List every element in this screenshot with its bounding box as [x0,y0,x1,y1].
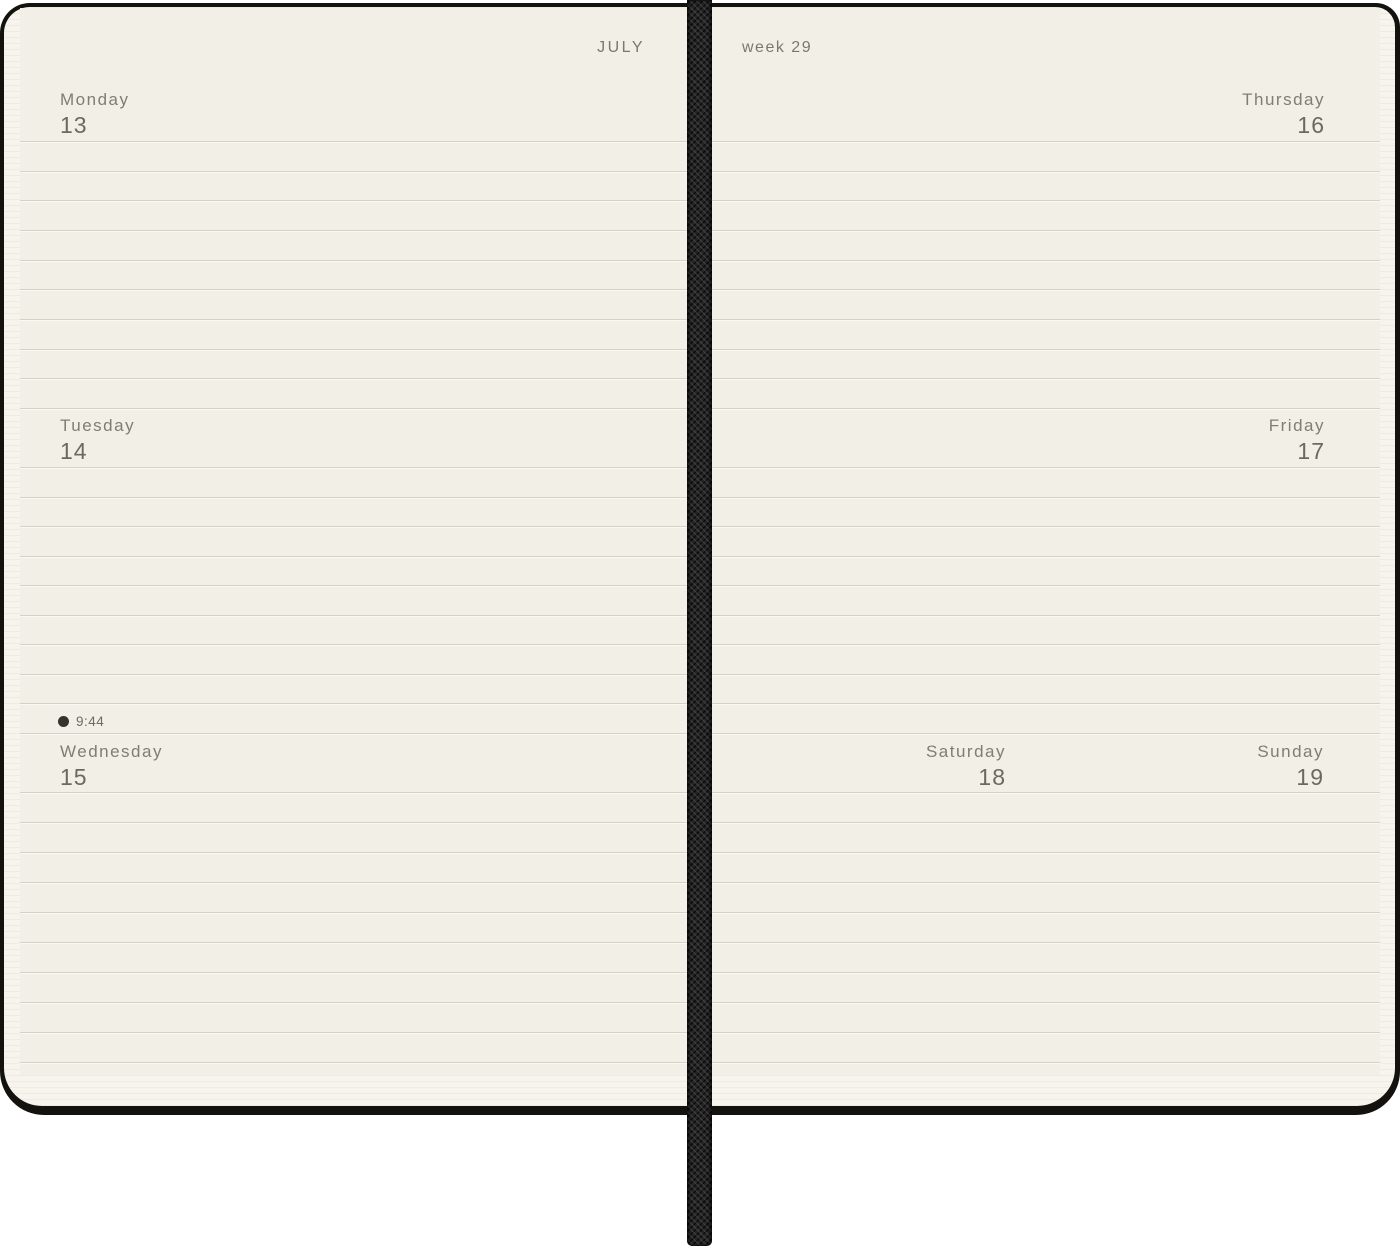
moon-phase-marker: 9:44 [58,714,104,729]
day-header-wednesday: Wednesday 15 [60,741,163,791]
day-header-friday: Friday 17 [1269,415,1325,465]
month-label: JULY [345,39,645,57]
product-photo: JULY week 29 Monday 13 Tuesday 14 9:44 W… [0,0,1400,1251]
day-number: 18 [926,764,1006,791]
day-name: Thursday [1242,89,1325,111]
day-name: Tuesday [60,415,135,437]
day-header-thursday: Thursday 16 [1242,89,1325,139]
day-number: 16 [1242,112,1325,139]
day-header-saturday: Saturday 18 [926,741,1006,791]
new-moon-icon [58,716,69,727]
day-number: 13 [60,112,129,139]
day-header-monday: Monday 13 [60,89,129,139]
day-name: Monday [60,89,129,111]
bookmark-ribbon [687,0,712,1246]
day-name: Friday [1269,415,1325,437]
day-name: Wednesday [60,741,163,763]
day-name: Saturday [926,741,1006,763]
day-number: 17 [1269,438,1325,465]
day-header-sunday: Sunday 19 [1257,741,1324,791]
moon-phase-time: 9:44 [76,714,104,729]
week-number-label: week 29 [742,39,812,57]
day-name: Sunday [1257,741,1324,763]
day-header-tuesday: Tuesday 14 [60,415,135,465]
day-number: 15 [60,764,163,791]
day-number: 14 [60,438,135,465]
day-number: 19 [1257,764,1324,791]
